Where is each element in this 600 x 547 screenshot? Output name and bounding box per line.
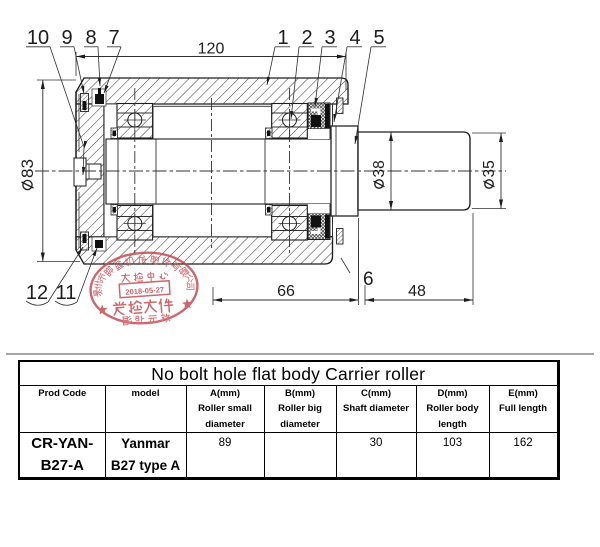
- svg-text:1: 1: [277, 27, 288, 49]
- svg-text:8: 8: [85, 27, 96, 49]
- svg-text:120: 120: [198, 41, 225, 58]
- svg-text:48: 48: [408, 283, 426, 300]
- svg-text:10: 10: [27, 27, 49, 49]
- svg-text:7: 7: [108, 27, 119, 49]
- svg-text:11: 11: [56, 282, 77, 304]
- svg-text:66: 66: [277, 283, 295, 300]
- svg-text:2: 2: [301, 27, 312, 49]
- svg-text:12: 12: [26, 282, 48, 304]
- svg-text:38: 38: [371, 160, 388, 177]
- svg-text:9: 9: [61, 27, 72, 49]
- svg-text:3: 3: [324, 27, 335, 49]
- svg-text:4: 4: [349, 27, 360, 49]
- svg-text:6: 6: [363, 269, 374, 290]
- svg-text:35: 35: [481, 160, 498, 177]
- svg-text:5: 5: [373, 27, 384, 49]
- svg-text:83: 83: [18, 159, 37, 178]
